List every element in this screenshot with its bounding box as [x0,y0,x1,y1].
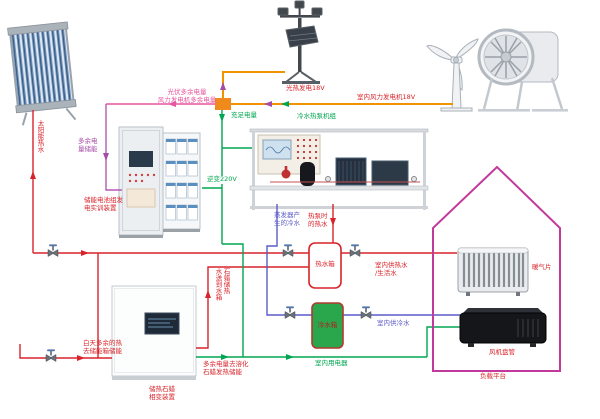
label-line: 去储能箱储能 [83,348,122,356]
flow-arrow-icon [81,250,89,256]
flow-arrow-icon [30,171,36,179]
label-hot-water-tank: 热水箱 [309,261,341,269]
solar-collector-illustration [8,22,78,126]
label-line: 电实训装置 [84,205,123,213]
label-heat-pump-unit: 冷水热泵机组 [297,113,336,121]
paraffin-storage-cabinet-illustration [112,286,196,380]
label-line: /生活水 [375,270,408,278]
flow-arrow-icon [264,101,272,107]
label-line: 石蜡发热储能 [203,369,249,377]
valve-icon [350,244,360,256]
system-schematic: 太阳能热水 光伏多余电量 风力发电机多余电量 充足电量 逆变220V 光热发电1… [0,0,600,419]
label-inverter-220v: 逆变220V [206,176,238,184]
label-evaporator-cold-water: 蒸发器产 生的冷水 [274,212,300,227]
label-paraffin-heat-to-tank: 石蜡储热 水送到水箱 [214,268,230,316]
label-line: 量储能 [78,146,98,154]
radiator-illustration [458,248,528,296]
label-indoor-appliances: 室内用电器 [315,360,348,368]
wire-18v-to-pv-tracker [223,72,285,98]
label-daytime-excess-heat: 白天多余的热 去储能箱储能 [83,340,122,355]
label-line: 石蜡储热 [222,268,230,316]
label-solar-thermal-18v: 光热发电18V [286,85,325,93]
flow-arrow-icon [77,355,85,361]
heat-pump-bench-illustration [250,129,428,210]
label-line: 相变装置 [140,394,184,402]
label-indoor-wind-18v: 室内风力发电机18V [357,94,415,102]
label-excess-power-storage: 多余电 量储能 [78,138,98,153]
label-sufficient-power: 充足电量 [231,112,257,120]
flow-arrow-icon [219,114,225,122]
label-indoor-cold-supply: 室内供冷水 [377,320,410,328]
label-battery-training-device: 储能电池组发 电实训装置 [84,197,123,212]
label-paraffin-device: 储热石蜡 相变装置 [140,386,184,401]
flow-arrow-icon [205,290,211,298]
label-radiator: 暖气片 [532,264,552,272]
wind-turbine-illustration [427,39,478,111]
label-line: 的热水 [308,221,328,229]
valve-icon [361,306,371,318]
valve-icon [48,244,58,256]
label-line: 水送到水箱 [214,268,222,316]
battery-cabinet-illustration [119,127,200,238]
label-excess-power-lines: 光伏多余电量 风力发电机多余电量 [152,89,222,104]
label-load-platform: 负载平台 [480,373,506,381]
flow-arrow-icon [286,354,294,360]
label-heat-pump-hot-water: 热泵时 的热水 [308,213,328,228]
label-fan-coil: 风机盘管 [489,349,515,357]
label-excess-power-melt-paraffin: 多余电量去溶化 石蜡发热储能 [203,361,249,376]
flow-arrow-icon [281,101,289,107]
valve-icon [46,349,56,361]
label-wind-excess: 风力发电机多余电量 [152,97,222,105]
flow-arrow-icon [103,153,109,161]
label-line: 生的冷水 [274,220,300,228]
wind-source-fan-illustration [478,30,568,112]
fan-coil-illustration [460,308,546,347]
label-cold-water-tank: 冷水箱 [312,322,343,330]
flow-arrow-icon [330,218,336,226]
valve-icon [285,306,295,318]
label-indoor-hot-supply: 室内供热水 /生活水 [375,262,408,277]
label-solar-hot-water: 太阳能热水 [36,120,44,153]
valve-icon [283,244,293,256]
